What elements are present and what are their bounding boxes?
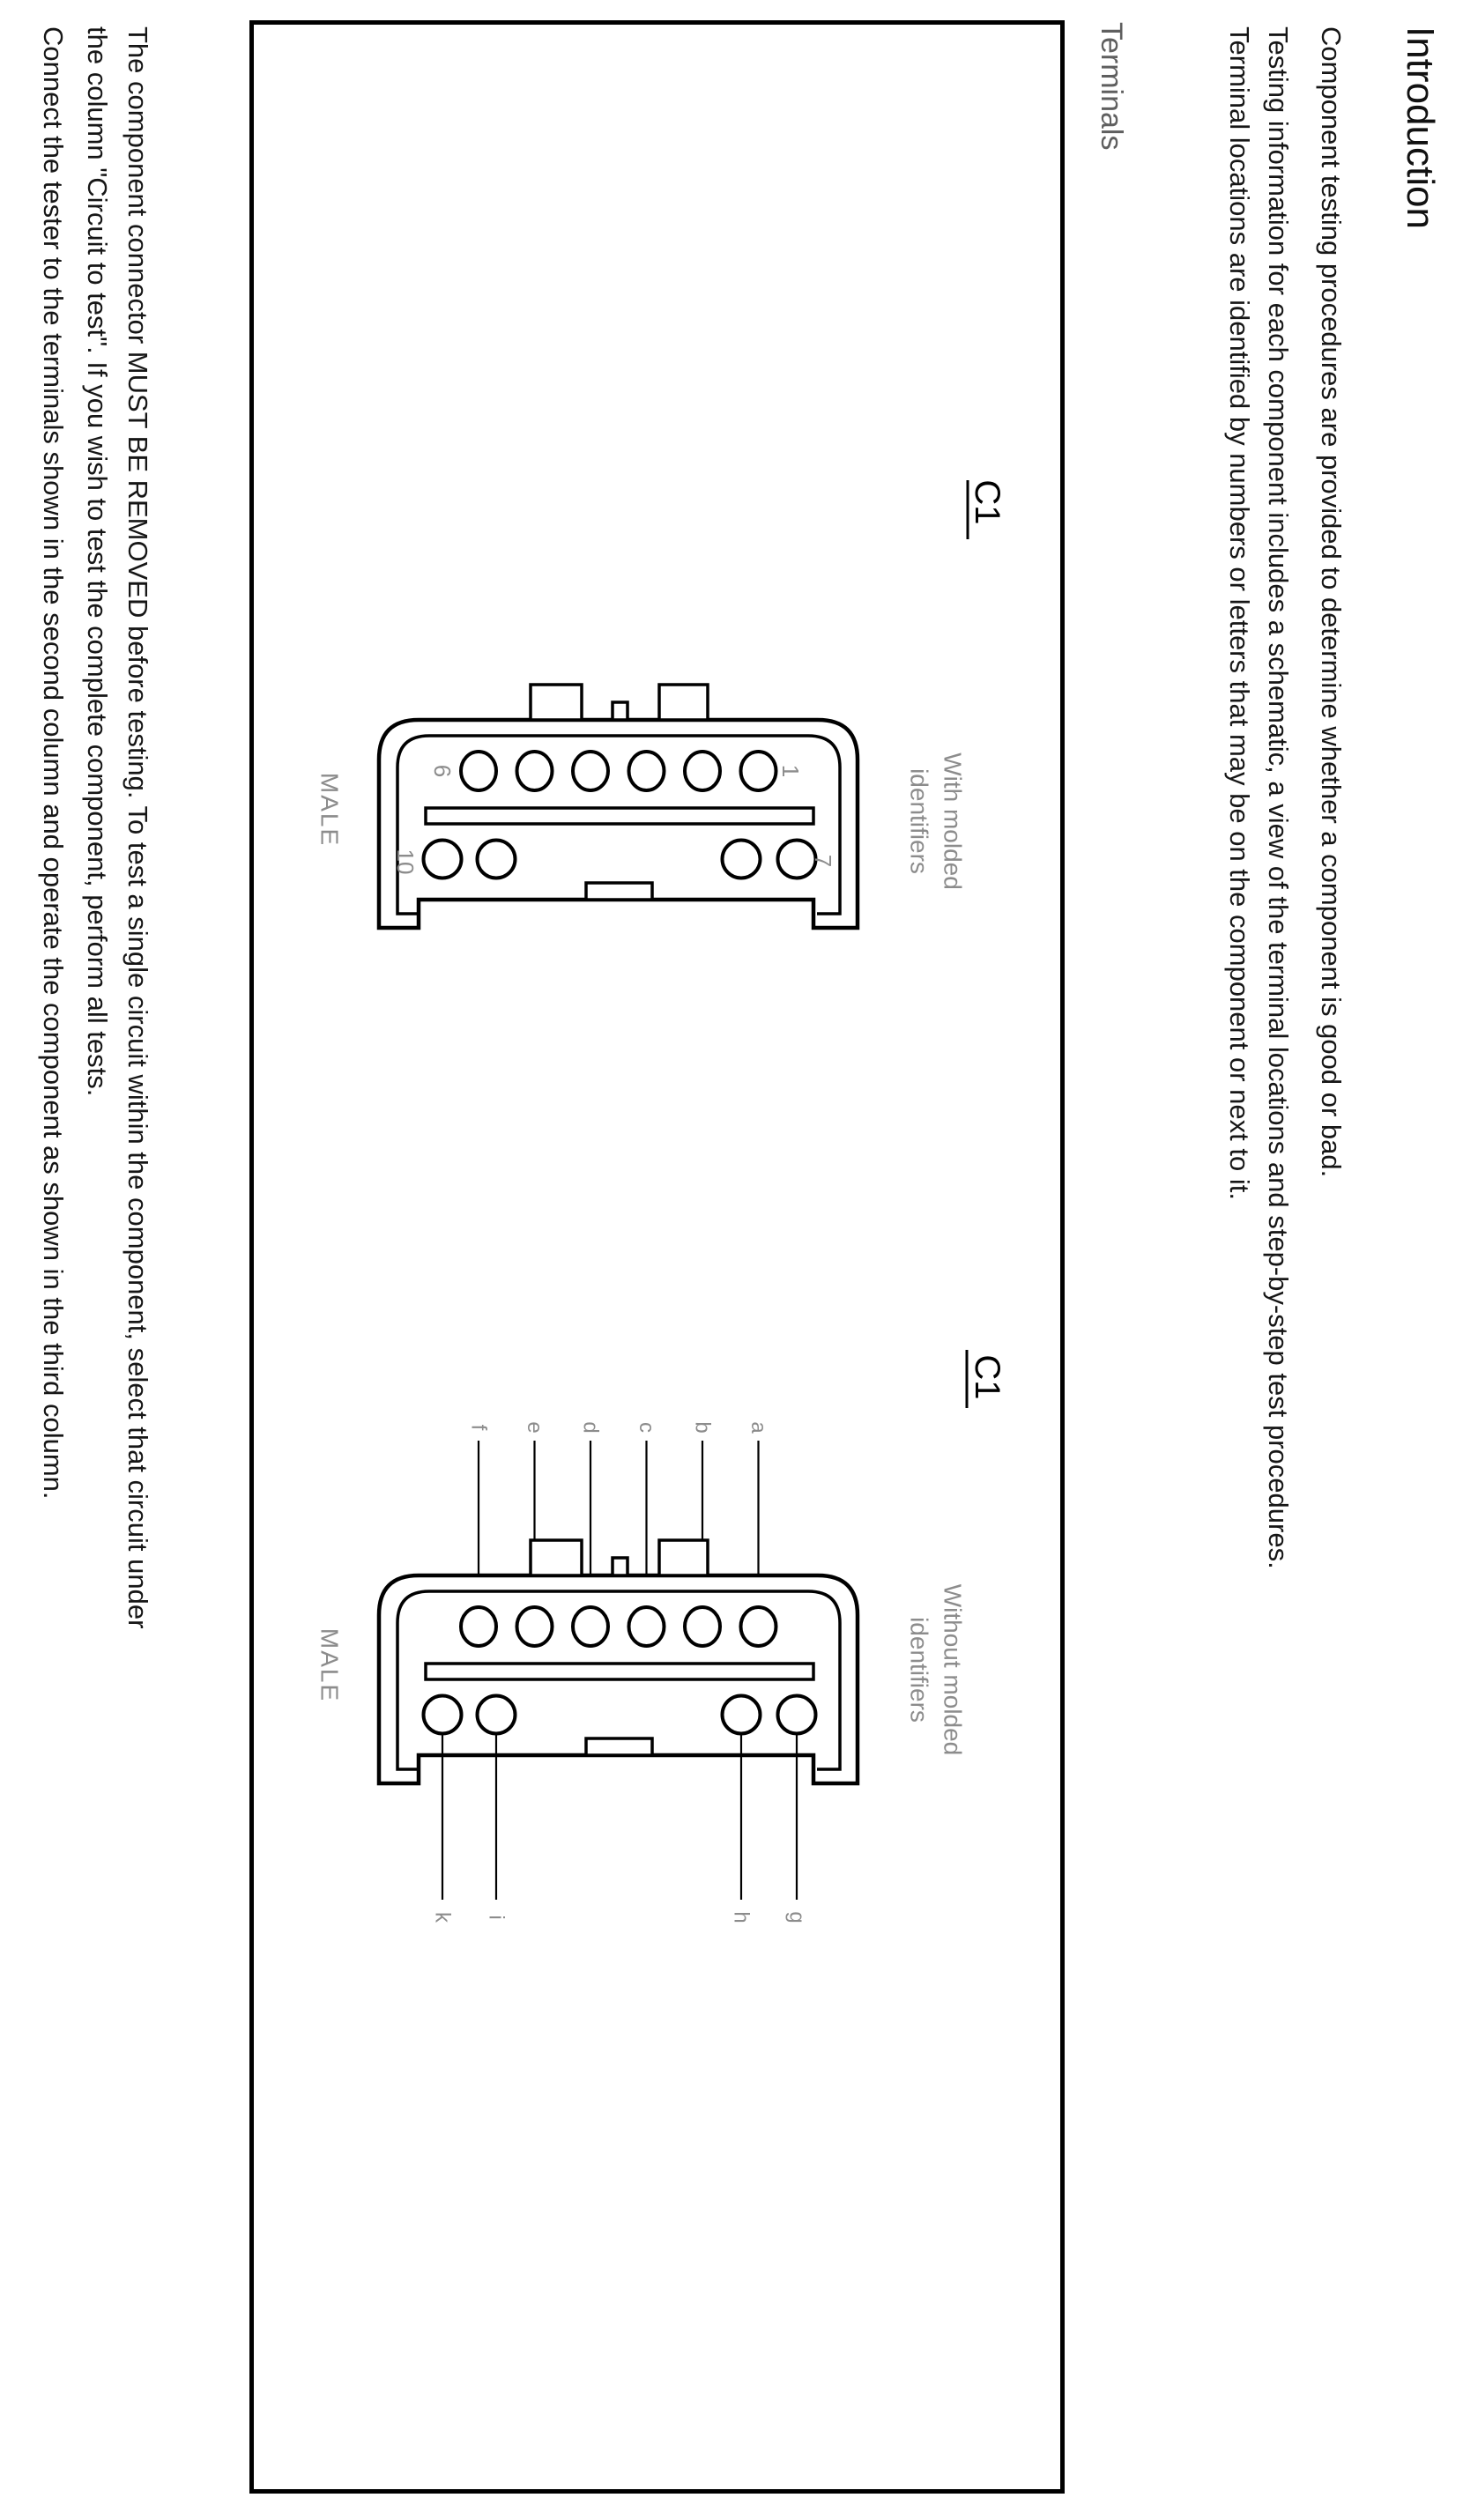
terminal-letter-i: i xyxy=(485,1915,509,1919)
pin-i xyxy=(478,1696,516,1734)
pin-d xyxy=(573,1607,608,1646)
connector-diagram-1: C1 6 1 10 xyxy=(300,458,1022,969)
terminal-letter-a: a xyxy=(746,1421,770,1434)
terminal-letter-f: f xyxy=(467,1425,491,1431)
intro-paragraph-line: Terminal locations are identified by num… xyxy=(1223,26,1255,1200)
terminal-letter-b: b xyxy=(691,1421,715,1433)
terminal-letter-h: h xyxy=(730,1911,754,1923)
index-bump xyxy=(613,702,628,720)
connector-figure-with-identifiers: C1 6 1 10 xyxy=(300,458,1022,969)
pin-number-7: 7 xyxy=(810,855,836,867)
terminal-letter-g: g xyxy=(785,1911,809,1923)
figure-caption-line1: With molded xyxy=(939,752,967,890)
pin-a xyxy=(741,1607,776,1646)
pin-k xyxy=(424,1696,462,1734)
bottom-latch-notch xyxy=(586,1738,652,1755)
intro-paragraph-line: Testing information for each component i… xyxy=(1262,26,1294,1569)
pin-8 xyxy=(723,841,761,878)
rotated-page: Introduction Component testing procedure… xyxy=(0,0,1463,2520)
connector-figure-without-identifiers: C1 xyxy=(300,1330,1022,1938)
pin-b xyxy=(685,1607,720,1646)
pin-number-1: 1 xyxy=(777,765,804,777)
pin-9 xyxy=(478,841,516,878)
terminal-letter-k: k xyxy=(431,1912,455,1923)
figure-caption-line2: identifiers xyxy=(906,1617,933,1723)
index-bump xyxy=(613,1558,628,1575)
connector-diagram-2: C1 xyxy=(300,1330,1022,1938)
mount-tab xyxy=(659,1540,708,1575)
pin-10 xyxy=(424,841,462,878)
pin-h xyxy=(723,1696,761,1734)
pin-4 xyxy=(573,752,608,790)
pin-c xyxy=(629,1607,665,1646)
connector-id-label: C1 xyxy=(968,1354,1006,1399)
figure-frame xyxy=(249,20,1065,2494)
pin-f xyxy=(461,1607,496,1646)
pin-g xyxy=(778,1696,816,1734)
gender-label: MALE xyxy=(316,773,344,847)
center-slot xyxy=(426,808,813,824)
footer-paragraph-line: Connect the tester to the terminals show… xyxy=(37,26,69,1500)
terminal-letter-c: c xyxy=(635,1422,658,1433)
connector-id-label: C1 xyxy=(968,479,1006,524)
mount-tab xyxy=(531,1540,582,1575)
pin-2 xyxy=(685,752,720,790)
mount-tab xyxy=(531,685,582,720)
section-label-terminals: Terminals xyxy=(1094,22,1128,150)
page-title: Introduction xyxy=(1398,26,1442,229)
center-slot xyxy=(426,1664,813,1679)
intro-paragraph-line: Component testing procedures are provide… xyxy=(1315,26,1347,1177)
terminal-letter-e: e xyxy=(523,1421,546,1433)
pin-3 xyxy=(629,752,665,790)
bottom-latch-notch xyxy=(586,883,652,900)
terminal-letter-d: d xyxy=(579,1421,603,1433)
manual-page-screenshot: Introduction Component testing procedure… xyxy=(0,0,1463,2520)
mount-tab xyxy=(659,685,708,720)
gender-label: MALE xyxy=(316,1628,344,1702)
footer-paragraph-line: the column "Circuit to test". If you wis… xyxy=(81,26,113,1096)
pin-5 xyxy=(517,752,553,790)
pin-e xyxy=(517,1607,553,1646)
pin-6 xyxy=(461,752,496,790)
pin-number-10: 10 xyxy=(392,849,419,875)
figure-caption-line2: identifiers xyxy=(906,768,933,874)
footer-paragraph-line: The component connector MUST BE REMOVED … xyxy=(122,26,153,1628)
figure-caption-line1: Without molded xyxy=(939,1584,967,1756)
pin-number-6: 6 xyxy=(429,765,456,777)
pin-1 xyxy=(741,752,776,790)
